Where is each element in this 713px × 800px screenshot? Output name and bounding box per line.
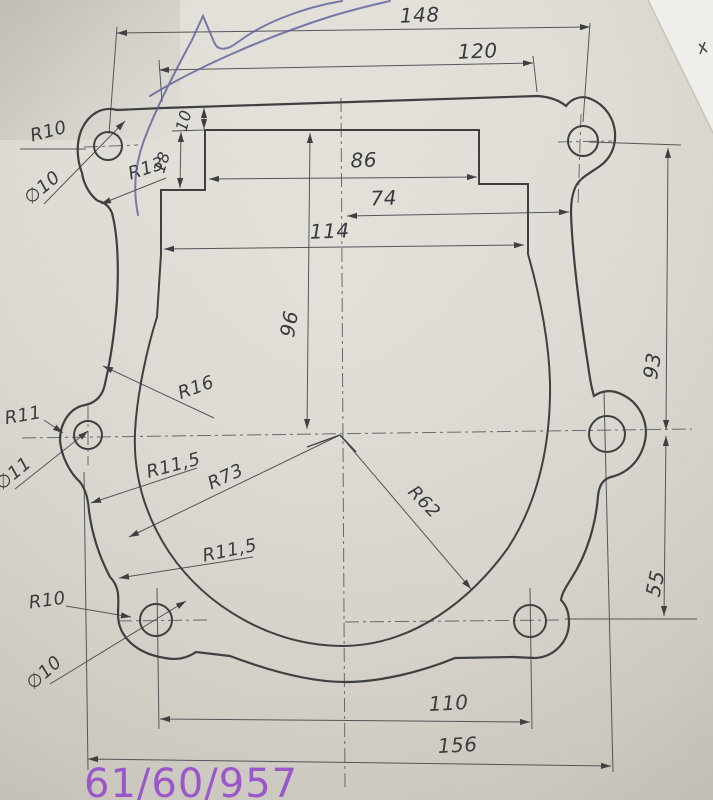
dim-114: 114: [310, 218, 351, 243]
dim-156: 156: [437, 732, 478, 758]
dim-93: 93: [638, 351, 666, 381]
dim-96: 96: [275, 309, 303, 339]
photographed-technical-drawing: 148 120 10 18 86 74 114 96 93 55 110 156…: [0, 0, 713, 800]
dim-120: 120: [458, 38, 499, 63]
dim-86: 86: [350, 148, 377, 173]
dim-110: 110: [428, 690, 469, 716]
annotation-text: 61/60/957: [84, 761, 298, 800]
gasket-drawing: 148 120 10 18 86 74 114 96 93 55 110 156…: [0, 0, 713, 800]
dim-148: 148: [400, 2, 441, 27]
paper-sheet: [0, 0, 713, 800]
dim-74: 74: [370, 186, 397, 211]
